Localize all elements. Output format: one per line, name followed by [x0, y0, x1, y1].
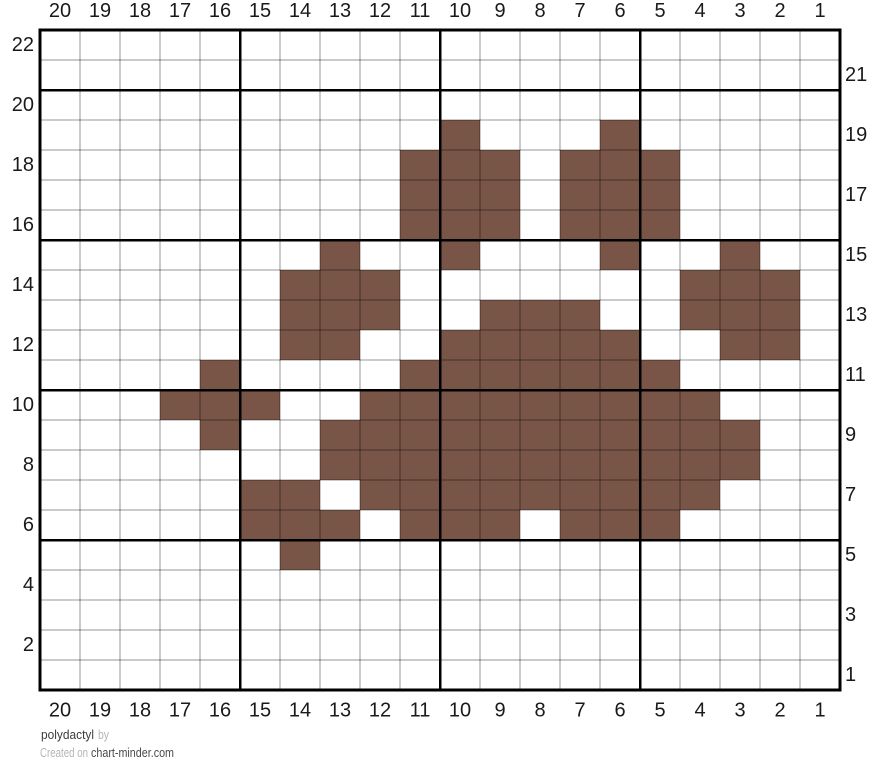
svg-text:14: 14	[289, 0, 311, 22]
svg-text:7: 7	[574, 700, 585, 722]
svg-text:12: 12	[369, 700, 391, 722]
svg-text:2: 2	[774, 0, 785, 22]
svg-text:5: 5	[845, 544, 856, 566]
svg-text:10: 10	[449, 0, 471, 22]
svg-text:4: 4	[694, 700, 705, 722]
svg-text:6: 6	[614, 700, 625, 722]
svg-text:19: 19	[845, 124, 867, 146]
svg-text:1: 1	[814, 0, 825, 22]
svg-text:11: 11	[845, 364, 866, 386]
svg-text:18: 18	[129, 0, 151, 22]
svg-text:12: 12	[12, 334, 34, 356]
svg-text:12: 12	[369, 0, 391, 22]
svg-text:15: 15	[249, 700, 271, 722]
svg-text:11: 11	[410, 0, 431, 22]
svg-text:9: 9	[494, 700, 505, 722]
svg-text:18: 18	[129, 700, 151, 722]
svg-text:21: 21	[845, 64, 867, 86]
svg-text:13: 13	[329, 0, 351, 22]
svg-text:6: 6	[23, 514, 34, 536]
svg-text:10: 10	[449, 700, 471, 722]
svg-text:2: 2	[23, 634, 34, 656]
svg-text:9: 9	[845, 424, 856, 446]
svg-text:8: 8	[534, 0, 545, 22]
svg-text:20: 20	[12, 94, 34, 116]
svg-text:3: 3	[734, 0, 745, 22]
svg-text:14: 14	[12, 274, 34, 296]
svg-text:10: 10	[12, 394, 34, 416]
svg-text:1: 1	[814, 700, 825, 722]
svg-text:22: 22	[12, 34, 34, 56]
svg-text:15: 15	[249, 0, 271, 22]
svg-text:13: 13	[845, 304, 867, 326]
svg-text:5: 5	[654, 0, 665, 22]
svg-text:13: 13	[329, 700, 351, 722]
svg-text:15: 15	[845, 244, 867, 266]
svg-text:16: 16	[209, 700, 231, 722]
svg-text:5: 5	[654, 700, 665, 722]
svg-text:17: 17	[169, 0, 191, 22]
svg-text:4: 4	[23, 574, 34, 596]
svg-text:20: 20	[49, 700, 71, 722]
svg-text:19: 19	[89, 700, 111, 722]
svg-text:8: 8	[23, 454, 34, 476]
svg-text:chart-minder.com: chart-minder.com	[91, 746, 174, 760]
svg-text:16: 16	[12, 214, 34, 236]
svg-text:17: 17	[169, 700, 191, 722]
svg-text:3: 3	[845, 604, 856, 626]
svg-text:17: 17	[845, 184, 867, 206]
svg-text:polydactyl: polydactyl	[41, 727, 94, 742]
svg-text:20: 20	[49, 0, 71, 22]
svg-text:18: 18	[12, 154, 34, 176]
svg-text:9: 9	[494, 0, 505, 22]
svg-text:7: 7	[574, 0, 585, 22]
svg-text:Created on: Created on	[40, 746, 88, 760]
svg-text:16: 16	[209, 0, 231, 22]
svg-text:8: 8	[534, 700, 545, 722]
svg-text:1: 1	[845, 664, 856, 686]
svg-text:7: 7	[845, 484, 856, 506]
svg-text:11: 11	[410, 700, 431, 722]
svg-text:4: 4	[694, 0, 705, 22]
svg-text:2: 2	[774, 700, 785, 722]
svg-text:by: by	[98, 727, 109, 742]
svg-text:19: 19	[89, 0, 111, 22]
svg-text:6: 6	[614, 0, 625, 22]
svg-text:14: 14	[289, 700, 311, 722]
svg-text:3: 3	[734, 700, 745, 722]
